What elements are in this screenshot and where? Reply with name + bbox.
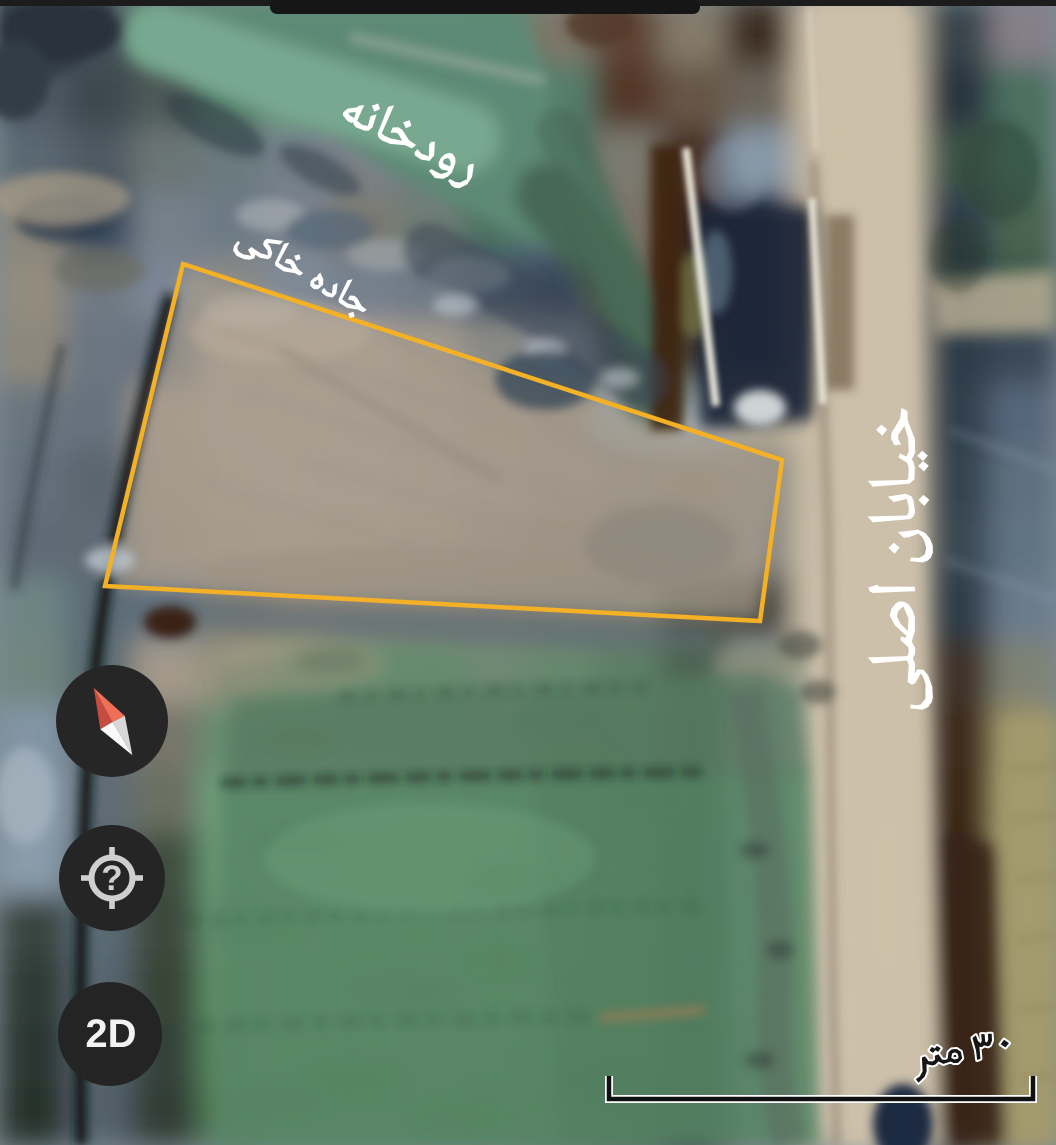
svg-text:2D: 2D xyxy=(85,1012,136,1056)
svg-text:?: ? xyxy=(101,859,122,898)
